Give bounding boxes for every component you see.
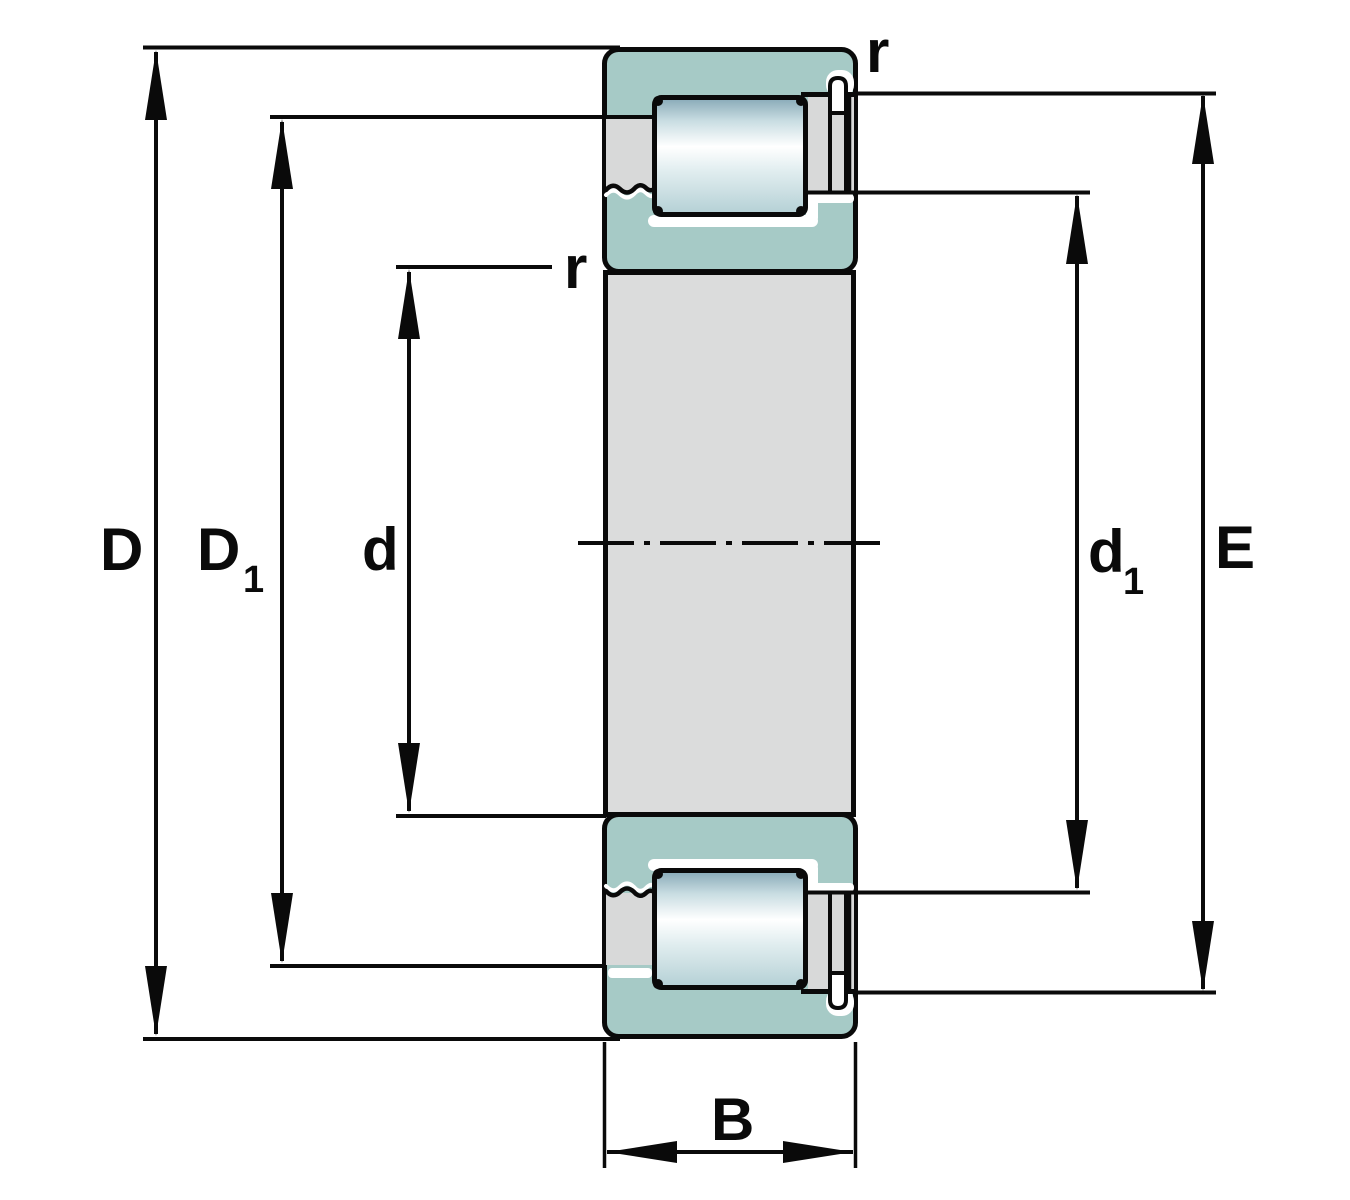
label-r-mid: r [564,234,587,301]
label-B: B [711,1086,754,1153]
roller-corner-dot [653,206,663,216]
inner-ring-stub-top [606,117,652,190]
snap-ring-lower-top [830,111,846,192]
pocket-highlight-top [808,194,854,203]
arrowhead-left [607,1141,677,1163]
arrowhead-down [271,893,293,963]
roller-corner-dot [796,979,806,989]
arrowhead-down [1066,820,1088,890]
snap-ring-upper-bottom [830,894,846,975]
bearing-section-top [605,50,856,272]
roller-top [655,98,806,215]
label-d: d [362,516,399,583]
arrowhead-right [783,1141,853,1163]
roller-bottom [655,871,806,988]
label-d1-main: d [1088,518,1125,585]
arrowhead-down [1192,921,1214,991]
dimension-E [856,94,1216,993]
roller-corner-dot [653,869,663,879]
arrowhead-up [271,119,293,189]
arrowhead-up [1066,194,1088,264]
roller-corner-dot [653,979,663,989]
roller-corner-dot [653,96,663,106]
label-D: D [100,516,143,583]
bearing-dimension-drawing: D D 1 d d 1 E B r r [0,0,1350,1200]
label-D1-main: D [197,516,240,583]
label-D1-sub: 1 [243,559,264,601]
drawing-canvas: D D 1 d d 1 E B r r [0,0,1350,1200]
arrowhead-up [398,269,420,339]
label-d1-sub: 1 [1123,561,1144,603]
label-E: E [1215,514,1255,581]
inner-ring-stub-bottom [606,893,652,965]
arrowhead-up [145,50,167,120]
roller-corner-dot [796,96,806,106]
stub-highlight-bottom [608,968,652,978]
roller-corner-dot [796,206,806,216]
dimension-d [396,267,606,816]
roller-corner-dot [796,869,806,879]
arrowhead-down [145,966,167,1036]
label-r-top: r [866,18,889,85]
arrowhead-up [1192,94,1214,164]
bearing-section-bottom [605,815,856,1037]
arrowhead-down [398,743,420,813]
